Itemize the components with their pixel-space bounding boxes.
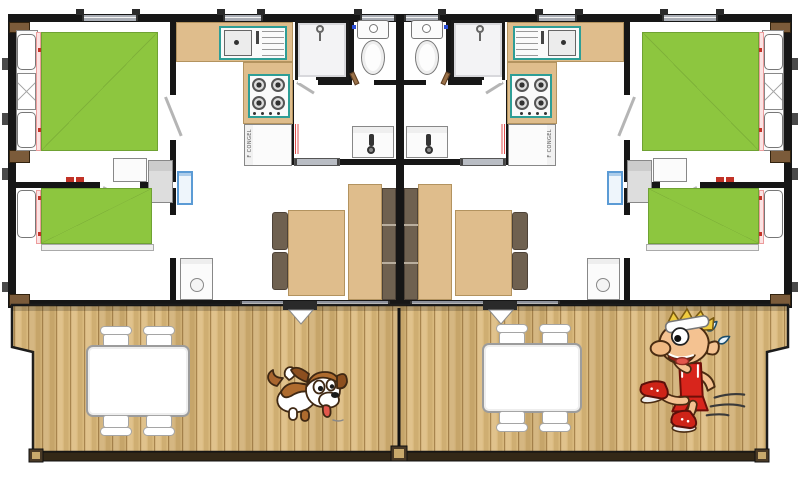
fridge: F CONGEL bbox=[508, 124, 556, 166]
shower-head-icon bbox=[476, 25, 484, 33]
pillow bbox=[764, 112, 783, 148]
roof-bracket bbox=[660, 9, 668, 15]
shower-arm bbox=[479, 33, 481, 41]
wc-indicator bbox=[444, 25, 448, 29]
bed-hook bbox=[759, 196, 762, 200]
tap-icon bbox=[426, 134, 431, 146]
twin-bed bbox=[648, 188, 759, 244]
toilet-icon bbox=[415, 40, 439, 75]
wall-bedroom2 bbox=[624, 258, 630, 300]
red-sneaker bbox=[640, 381, 668, 405]
stove-burner-icon bbox=[515, 96, 529, 110]
sliding-door-bathroom bbox=[460, 158, 506, 166]
bed-hook bbox=[759, 128, 762, 132]
cushion-gap bbox=[404, 262, 418, 264]
stove-knob bbox=[528, 112, 531, 115]
cushion-gap bbox=[404, 224, 418, 226]
corner-post bbox=[770, 150, 791, 163]
pillow bbox=[764, 190, 783, 238]
patio-table bbox=[482, 343, 582, 413]
dining-chair bbox=[512, 252, 528, 290]
dining-table bbox=[418, 184, 452, 300]
door-shower bbox=[485, 81, 504, 94]
window-kitchen bbox=[537, 15, 577, 21]
banquette-bench bbox=[404, 188, 418, 300]
pillow bbox=[764, 34, 783, 70]
patio-chair bbox=[100, 427, 132, 436]
bed-hook bbox=[759, 232, 762, 236]
double-bed bbox=[642, 32, 759, 151]
sink-drain-icon bbox=[561, 40, 566, 45]
stove-burner-icon bbox=[534, 78, 548, 92]
puppy-dog-illustration bbox=[263, 362, 351, 424]
dining-chair bbox=[512, 212, 528, 250]
elf-head bbox=[651, 309, 719, 365]
roof-bracket bbox=[438, 9, 446, 15]
wall-stud bbox=[792, 58, 798, 70]
flush-button bbox=[422, 24, 431, 33]
patio-chair bbox=[496, 423, 528, 432]
wall-stud bbox=[792, 168, 798, 180]
wall-heater bbox=[607, 171, 623, 205]
towel-radiator bbox=[500, 124, 505, 154]
wall-shower-bottom bbox=[448, 80, 482, 85]
door-bedroom1 bbox=[617, 96, 636, 136]
slippers bbox=[726, 177, 734, 182]
running-elf-illustration bbox=[628, 306, 756, 434]
dining-table bbox=[455, 210, 512, 296]
sink-drainer bbox=[516, 31, 538, 56]
red-sneaker bbox=[671, 411, 696, 432]
wall-stud bbox=[792, 113, 798, 125]
window-bedroom1 bbox=[662, 15, 718, 21]
stove-knob bbox=[520, 112, 523, 115]
stove-burner-icon bbox=[534, 96, 548, 110]
stove-burner-icon bbox=[515, 78, 529, 92]
bed-hook bbox=[759, 48, 762, 52]
shower-door-gap bbox=[484, 77, 502, 83]
tap-icon bbox=[541, 31, 544, 44]
folded-blanket bbox=[764, 73, 783, 110]
bed-footboard bbox=[646, 244, 759, 251]
roof-bracket bbox=[535, 9, 543, 15]
roof-bracket bbox=[716, 9, 724, 15]
roof-bracket bbox=[575, 9, 583, 15]
floorplan: F CONGEL bbox=[0, 0, 800, 477]
wall-stud bbox=[792, 282, 798, 292]
wall-wc-bottom bbox=[404, 80, 426, 85]
slippers bbox=[716, 177, 724, 182]
deck-divider bbox=[398, 308, 401, 454]
stove-knob bbox=[544, 112, 547, 115]
patio-table bbox=[86, 345, 190, 417]
water-heater-dial bbox=[596, 278, 610, 292]
patio-chair bbox=[143, 427, 175, 436]
wall-bedroom1 bbox=[624, 14, 630, 95]
dresser bbox=[653, 158, 687, 182]
basin-drain bbox=[425, 146, 433, 154]
stove-knob bbox=[536, 112, 539, 115]
fridge-label: F CONGEL bbox=[547, 129, 553, 158]
patio-chair bbox=[539, 423, 571, 432]
unit-right: F CONGEL bbox=[0, 0, 800, 310]
